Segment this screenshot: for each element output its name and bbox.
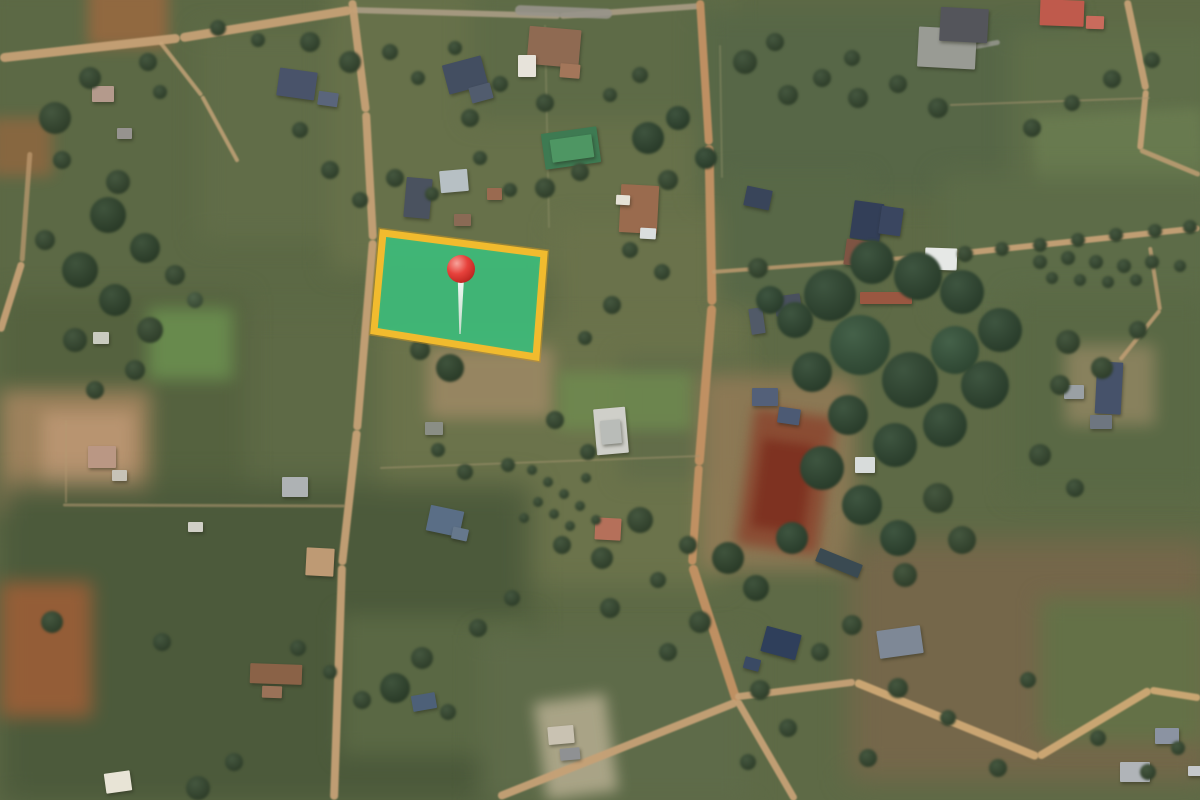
map-canvas[interactable] [0,0,1200,800]
pin-head [447,255,475,283]
parcel-highlight-overlay [0,0,1200,800]
